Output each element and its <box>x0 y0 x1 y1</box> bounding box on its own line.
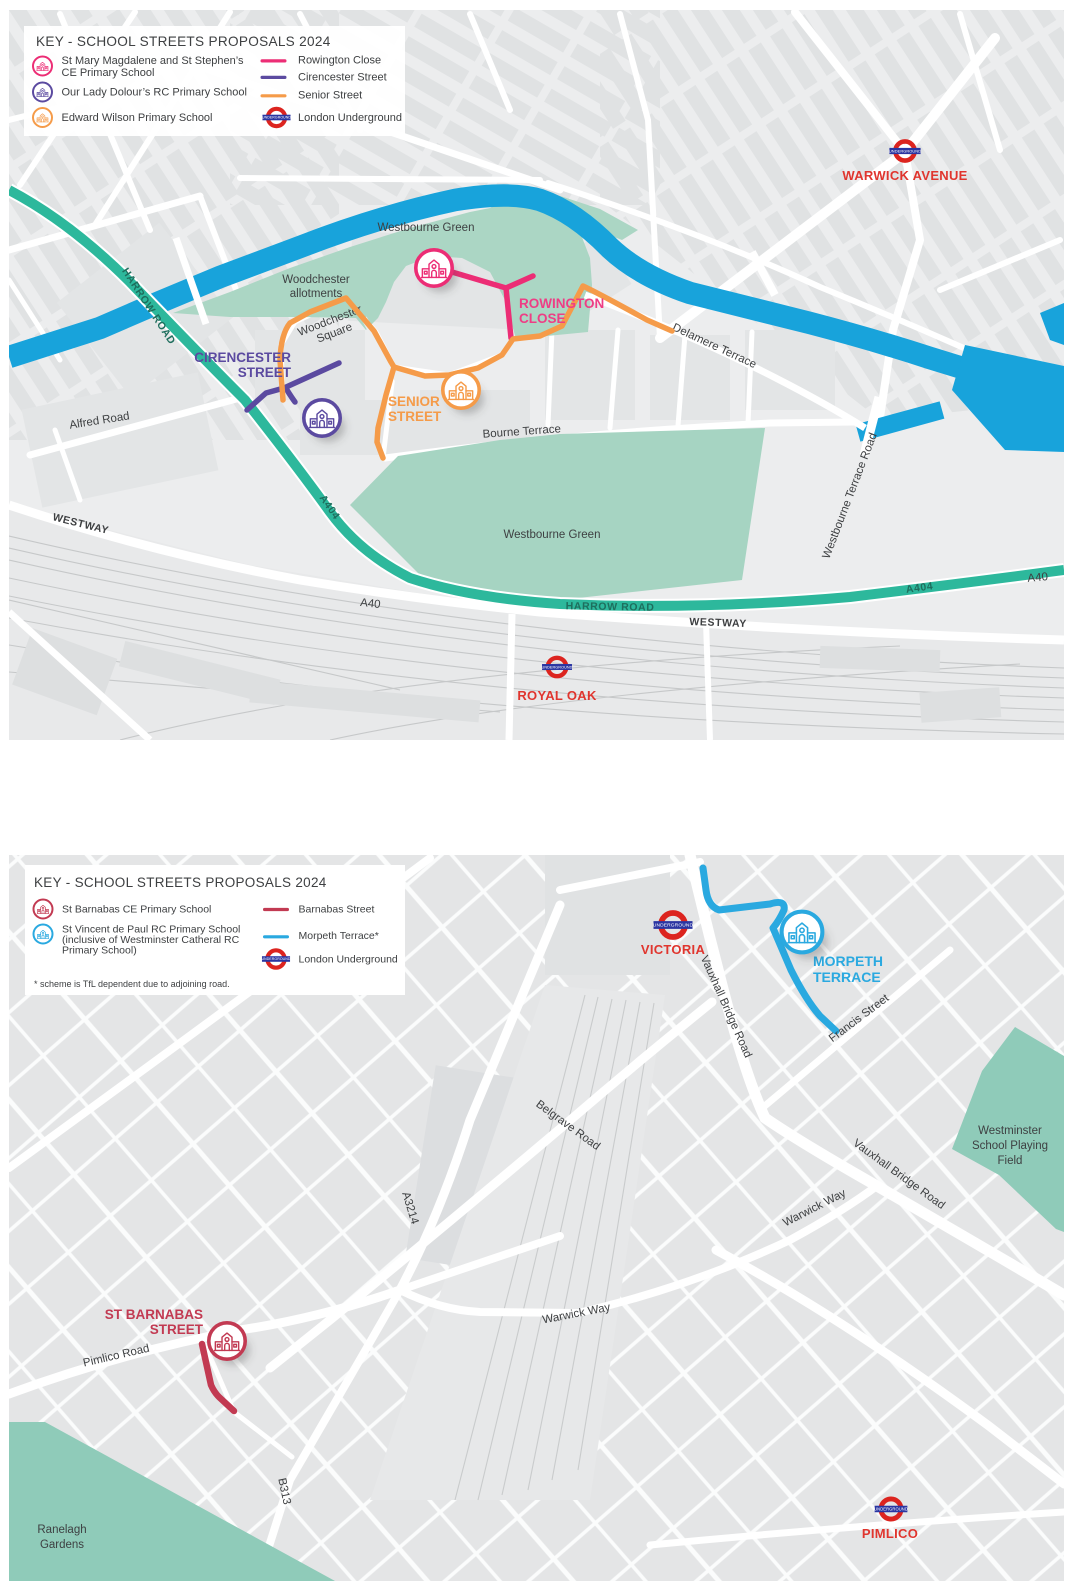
svg-text:VICTORIA: VICTORIA <box>641 942 706 957</box>
svg-text:School Playing: School Playing <box>972 1140 1048 1152</box>
svg-text:Westbourne Green: Westbourne Green <box>504 529 601 541</box>
svg-text:KEY - SCHOOL STREETS PROPOSALS: KEY - SCHOOL STREETS PROPOSALS 2024 <box>34 875 327 890</box>
svg-text:HARROW ROAD: HARROW ROAD <box>566 600 655 614</box>
svg-text:Westbourne Green: Westbourne Green <box>378 222 475 234</box>
svg-text:ROYAL OAK: ROYAL OAK <box>517 688 597 703</box>
svg-text:A40: A40 <box>360 597 382 611</box>
svg-text:SENIOR: SENIOR <box>388 394 440 409</box>
svg-text:Senior Street: Senior Street <box>298 90 362 102</box>
svg-text:Barnabas Street: Barnabas Street <box>299 904 375 916</box>
svg-text:London Underground: London Underground <box>298 112 402 124</box>
svg-text:Cirencester Street: Cirencester Street <box>298 72 387 84</box>
svg-text:PIMLICO: PIMLICO <box>862 1526 918 1541</box>
svg-text:Gardens: Gardens <box>40 1539 84 1551</box>
svg-text:Our Lady Dolour’s RC Primary S: Our Lady Dolour’s RC Primary School <box>62 87 247 99</box>
svg-text:* scheme is TfL dependent due: * scheme is TfL dependent due to adjoini… <box>34 979 230 989</box>
svg-text:Field: Field <box>998 1155 1023 1167</box>
svg-text:WARWICK AVENUE: WARWICK AVENUE <box>842 168 967 183</box>
svg-text:CIRENCESTER: CIRENCESTER <box>194 350 291 365</box>
svg-text:ROWINGTON: ROWINGTON <box>519 296 604 311</box>
svg-text:Rowington Close: Rowington Close <box>298 55 381 67</box>
svg-text:Ranelagh: Ranelagh <box>37 1524 86 1536</box>
svg-text:MORPETH: MORPETH <box>813 953 883 969</box>
svg-text:STREET: STREET <box>238 365 292 380</box>
svg-text:STREET: STREET <box>150 1322 204 1337</box>
svg-text:allotments: allotments <box>290 288 343 300</box>
svg-text:Edward Wilson Primary School: Edward Wilson Primary School <box>62 112 213 124</box>
svg-text:Morpeth Terrace*: Morpeth Terrace* <box>299 930 379 942</box>
svg-text:Westminster: Westminster <box>978 1125 1042 1137</box>
svg-text:STREET: STREET <box>388 409 442 424</box>
svg-text:KEY - SCHOOL STREETS PROPOSALS: KEY - SCHOOL STREETS PROPOSALS 2024 <box>36 34 331 49</box>
svg-text:WESTWAY: WESTWAY <box>689 616 747 630</box>
svg-text:CE Primary School: CE Primary School <box>62 67 155 79</box>
svg-text:Primary School): Primary School) <box>62 945 137 957</box>
svg-text:TERRACE: TERRACE <box>813 969 881 985</box>
svg-text:St Barnabas CE Primary School: St Barnabas CE Primary School <box>62 904 211 916</box>
svg-text:CLOSE: CLOSE <box>519 311 566 326</box>
svg-text:A40: A40 <box>1027 571 1048 585</box>
svg-text:ST BARNABAS: ST BARNABAS <box>105 1307 203 1322</box>
svg-text:St Mary Magdalene and St Steph: St Mary Magdalene and St Stephen’s <box>62 55 245 67</box>
svg-text:London Underground: London Underground <box>299 954 398 966</box>
svg-text:Woodchester: Woodchester <box>282 274 350 286</box>
